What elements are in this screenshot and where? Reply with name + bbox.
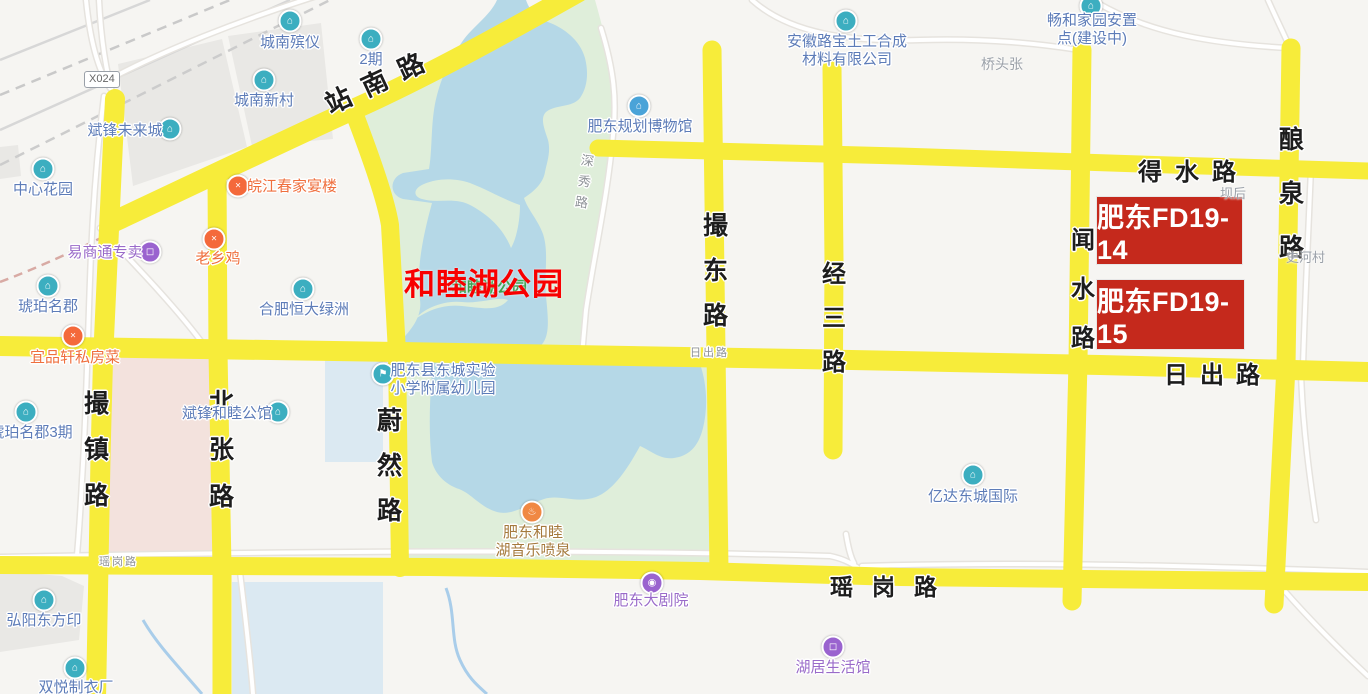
poi-label[interactable]: 肥东规划博物馆 — [587, 118, 692, 136]
route-shield-x024: X024 — [84, 71, 120, 88]
road-label-4: 撮东路 — [703, 206, 728, 341]
poi-label[interactable]: 城南殡仪 — [260, 34, 320, 52]
road-label-9: 日出路 — [1164, 355, 1272, 390]
restaurant-icon[interactable]: × — [203, 228, 226, 251]
poi-label[interactable]: 2期 — [359, 51, 382, 69]
road-label-8: 得水路 — [1138, 152, 1249, 187]
poi-label[interactable]: 合肥恒大绿洲 — [259, 301, 349, 319]
poi-label[interactable]: 肥东县东城实验小学附属幼儿园 — [390, 362, 495, 398]
residential-icon[interactable]: ⌂ — [292, 278, 315, 301]
poi-label[interactable]: 老乡鸡 — [195, 250, 240, 268]
poi-label[interactable]: 双悦制衣厂 — [38, 679, 113, 694]
road-label-1: 撮镇路 — [84, 384, 109, 522]
fountain-icon[interactable]: ♨ — [521, 501, 544, 524]
poi-label[interactable]: 弘阳东方印 — [6, 612, 81, 630]
company-icon[interactable]: ⌂ — [835, 10, 858, 33]
poi-label[interactable]: 城南新村 — [234, 92, 294, 110]
shopping-icon[interactable]: ◻ — [822, 636, 845, 659]
park-name-overlay: 和睦湖公园 — [404, 259, 564, 304]
road-label-10: 瑶岗路 — [830, 568, 956, 602]
poi-label[interactable]: 琥珀名郡 — [18, 298, 78, 316]
poi-label[interactable]: 安徽路宝土工合成材料有限公司 — [787, 33, 907, 69]
map-canvas[interactable]: X024 和睦湖公园 和睦湖公园 肥东FD19-14 肥东FD19-15 站南路… — [0, 0, 1368, 694]
poi-label[interactable]: 肥东和睦湖音乐喷泉 — [495, 524, 570, 560]
funeral-home-icon[interactable]: ⌂ — [279, 10, 302, 33]
poi-label[interactable]: 斌锋和睦公馆 — [182, 405, 272, 423]
road-label-5: 经三路 — [822, 254, 846, 386]
poi-label[interactable]: 中心花园 — [13, 181, 73, 199]
road-label-11: 深秀路 — [574, 149, 596, 213]
residential-icon[interactable]: ⌂ — [37, 275, 60, 298]
poi-label[interactable]: 湖居生活馆 — [795, 659, 870, 677]
museum-icon[interactable]: ⌂ — [628, 95, 651, 118]
road-label-12: 日出路 — [690, 344, 729, 360]
poi-label[interactable]: 皖江春家宴楼 — [247, 178, 337, 196]
poi-label[interactable]: 宜品轩私房菜 — [30, 349, 120, 367]
road-label-13: 瑶岗路 — [99, 553, 138, 569]
poi-label[interactable]: 易商通专卖 — [67, 244, 142, 262]
residential-icon[interactable]: ⌂ — [360, 28, 383, 51]
factory-icon[interactable]: ⌂ — [64, 657, 87, 680]
residential-icon[interactable]: ⌂ — [32, 158, 55, 181]
poi-label[interactable]: 亿达东城国际 — [928, 488, 1018, 506]
area-label-0: 桥头张 — [981, 54, 1023, 74]
poi-label[interactable]: 畅和家园安置点(建设中) — [1047, 12, 1137, 48]
residential-icon[interactable]: ⌂ — [33, 589, 56, 612]
road-label-6: 闻水路 — [1071, 220, 1095, 367]
residential-icon[interactable]: ⌂ — [15, 401, 38, 424]
road-label-0: 站南路 — [318, 37, 442, 121]
residential-icon[interactable]: ⌂ — [253, 69, 276, 92]
area-label-2: 史河村 — [1286, 247, 1325, 266]
poi-label[interactable]: 肥东大剧院 — [613, 592, 688, 610]
parcel-marker-fd19-15: 肥东FD19-15 — [1097, 280, 1244, 349]
residential-icon[interactable]: ⌂ — [962, 464, 985, 487]
label-layer: X024 和睦湖公园 和睦湖公园 肥东FD19-14 肥东FD19-15 站南路… — [0, 0, 1368, 694]
area-label-1: 坝后 — [1220, 183, 1246, 202]
poi-label[interactable]: 琥珀名郡3期 — [0, 424, 73, 442]
restaurant-icon[interactable]: × — [62, 325, 85, 348]
road-label-3: 蔚然路 — [377, 401, 402, 536]
poi-label[interactable]: 斌锋未来城 — [87, 122, 162, 140]
parcel-marker-fd19-14: 肥东FD19-14 — [1097, 197, 1242, 264]
